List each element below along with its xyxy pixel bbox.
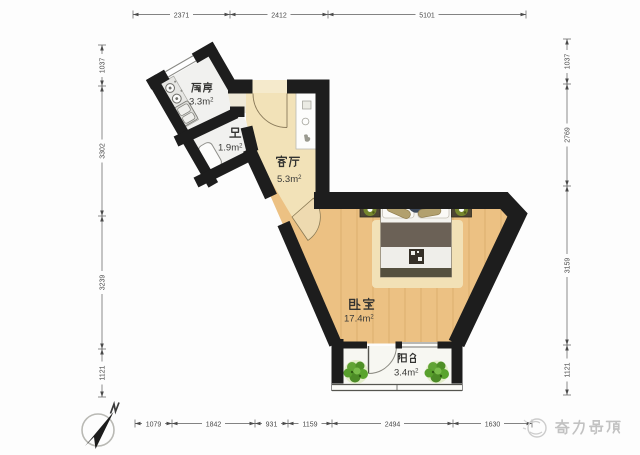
svg-text:1159: 1159	[302, 421, 317, 428]
svg-text:2371: 2371	[174, 12, 190, 19]
svg-text:1121: 1121	[565, 362, 572, 377]
svg-text:2412: 2412	[271, 12, 287, 19]
svg-text:1121: 1121	[100, 365, 107, 380]
svg-text:5101: 5101	[419, 12, 435, 19]
svg-text:1842: 1842	[206, 421, 222, 428]
svg-text:1037: 1037	[100, 58, 107, 74]
svg-text:2494: 2494	[385, 421, 401, 428]
svg-text:2769: 2769	[565, 127, 572, 143]
svg-text:3302: 3302	[100, 143, 107, 159]
svg-text:17.4m2: 17.4m2	[344, 314, 374, 325]
svg-text:1037: 1037	[565, 54, 572, 70]
svg-text:1079: 1079	[146, 421, 162, 428]
svg-text:1630: 1630	[485, 421, 501, 428]
svg-text:3159: 3159	[565, 258, 572, 274]
svg-text:931: 931	[266, 421, 278, 428]
svg-text:3239: 3239	[100, 275, 107, 291]
